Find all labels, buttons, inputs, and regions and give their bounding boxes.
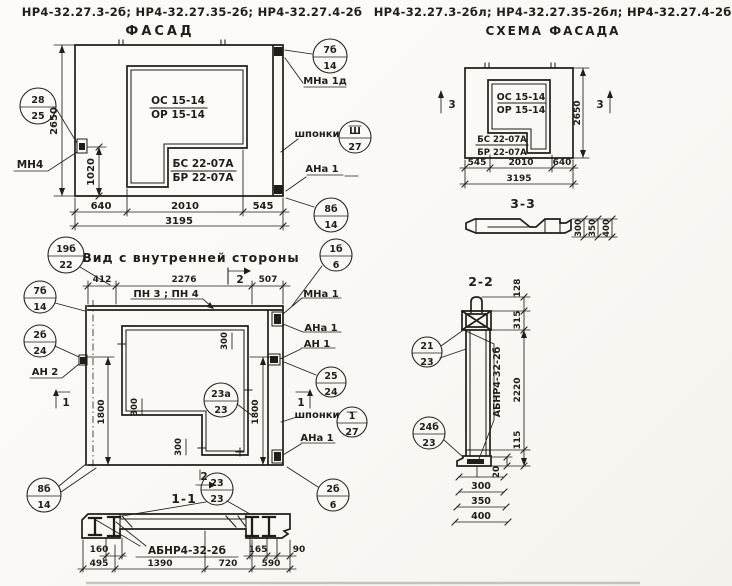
dim-stack-350: 350 (471, 496, 491, 507)
section-1-1: 1-1 23 23 АБНР4-32-2б 160 165 90 495 139… (78, 473, 305, 572)
arrowhead (105, 457, 111, 465)
section-3-3-title: 3-3 (510, 196, 536, 211)
an1-anchor (270, 356, 278, 363)
dim-300: 300 (574, 219, 584, 237)
section-mark-3-right: 3 (596, 99, 603, 111)
arrowhead (580, 150, 586, 158)
callout-top: 28 (31, 95, 45, 106)
callout-28-25: 28 25 (20, 88, 56, 124)
callout-top: 8б (324, 204, 338, 215)
callout-8b-14: 8б 14 (27, 478, 61, 512)
mark-or: ОР 15-14 (497, 105, 546, 116)
dim-720: 720 (219, 559, 238, 569)
callout-bottom: 22 (59, 260, 72, 271)
callout-top: Ш (349, 126, 361, 137)
callout-bottom: 14 (33, 302, 47, 313)
callout-2b-24: 2б 24 (24, 325, 56, 357)
dim-300-c: 300 (174, 438, 184, 456)
section-mark-1-right: 1 (297, 397, 304, 409)
dim-128: 128 (513, 279, 523, 298)
label-shponki: шпонки (294, 410, 339, 421)
label-mna1: МНа 1 (303, 289, 339, 300)
callout-top: 1 (349, 411, 356, 422)
dim-2010: 2010 (171, 201, 199, 212)
inner-view-drawing: Вид с внутренней стороны 412 2276 507 ПН… (24, 237, 367, 512)
dim-1020: 1020 (86, 158, 97, 186)
dim-1390: 1390 (147, 559, 172, 569)
section-2-2-title: 2-2 (468, 274, 494, 289)
header: НР4-32.27.3-2б; НР4-32.27.35-2б; НР4-32.… (22, 5, 732, 39)
right-codes: НР4-32.27.3-2бл; НР4-32.27.35-2бл; НР4-3… (374, 5, 732, 19)
dim-495: 495 (90, 559, 109, 569)
callout-7b-14: 7б 14 (313, 39, 347, 73)
callout-2b-6: 2б 6 (317, 479, 349, 511)
callout-top: 25 (324, 371, 337, 382)
callout-top: 19б (56, 244, 76, 255)
dim-640: 640 (91, 201, 112, 212)
label-ana1: АНа 1 (305, 164, 338, 175)
callout-19b-22: 19б 22 (48, 237, 84, 273)
callout-top: 23 (210, 478, 223, 489)
mark-bs: БС 22-07А (477, 135, 527, 145)
dim-90: 90 (293, 545, 306, 555)
schema-dim-lines (441, 68, 610, 188)
dim-2650: 2650 (573, 100, 583, 125)
callout-bottom: 6 (330, 500, 337, 511)
callout-bottom: 14 (324, 220, 338, 231)
foot-plate (467, 459, 484, 464)
profile-1-1-details (120, 514, 246, 529)
label-abnr-vertical: АБНР4-32-2б (492, 346, 503, 417)
label-ana1-bottom: АНа 1 (300, 433, 333, 444)
dim-160: 160 (90, 545, 109, 555)
dim-300-a: 300 (220, 332, 230, 350)
callout-1-27: 1 27 (337, 407, 367, 438)
callout-bottom: 27 (345, 427, 358, 438)
technical-drawing-sheet: НР4-32.27.3-2б; НР4-32.27.35-2б; НР4-32.… (0, 0, 732, 586)
drawing-canvas: НР4-32.27.3-2б; НР4-32.27.35-2б; НР4-32.… (0, 0, 732, 586)
facade-drawing: ОС 15-14 ОР 15-14 БС 22-07А БР 22-07А 26… (14, 39, 371, 232)
arrowhead (105, 357, 111, 365)
left-codes: НР4-32.27.3-2б; НР4-32.27.35-2б; НР4-32.… (22, 5, 362, 19)
callout-21-23: 21 23 (412, 337, 442, 368)
callout-top: 7б (323, 45, 337, 56)
dim-1800-left: 1800 (97, 399, 107, 424)
callout-bottom: 23 (420, 357, 433, 368)
arrowhead (96, 147, 102, 155)
label-an1: АН 1 (304, 339, 331, 350)
profile-3-3-details (476, 219, 560, 233)
callout-bottom: 23 (210, 494, 223, 505)
dim-115: 115 (513, 431, 523, 450)
callout-bottom: 27 (348, 142, 361, 153)
label-pn: ПН 3 ; ПН 4 (133, 289, 198, 300)
section-arrow-1-right (307, 389, 313, 396)
callout-bottom: 14 (37, 500, 51, 511)
dim-640: 640 (553, 158, 572, 168)
arrowhead (59, 188, 65, 196)
callout-top: 8б (37, 484, 51, 495)
callout-top: 7б (33, 286, 47, 297)
dim-2220: 2220 (513, 377, 523, 402)
dim-3195: 3195 (165, 216, 193, 227)
dim-2276: 2276 (171, 275, 196, 285)
profile-2-2-details (466, 330, 490, 456)
dim-590: 590 (262, 559, 281, 569)
callout-23-23: 23 23 (201, 473, 233, 505)
dim-3195: 3195 (506, 174, 531, 184)
callout-top: 2б (326, 484, 340, 495)
dim-165: 165 (249, 545, 268, 555)
label-shponki: шпонки (294, 129, 339, 140)
arrowhead (59, 45, 65, 53)
dim-545: 545 (468, 158, 487, 168)
dim-507: 507 (259, 275, 278, 285)
right-title: СХЕМА ФАСАДА (486, 24, 621, 38)
label-ana1-top: АНа 1 (304, 323, 337, 334)
dim-400: 400 (602, 219, 612, 237)
callout-top: 1б (329, 244, 343, 255)
section-arrow (438, 90, 444, 98)
section-arrow-2-top (244, 268, 251, 275)
callout-bottom: 24 (33, 346, 47, 357)
dim-1800-right: 1800 (251, 399, 261, 424)
label-abnr: АБНР4-32-2б (148, 545, 226, 557)
arrowhead (260, 357, 266, 365)
mark-or: ОР 15-14 (151, 109, 205, 121)
dim-350: 350 (588, 219, 598, 237)
callout-top: 23а (211, 389, 231, 400)
schema-drawing: ОС 15-14 ОР 15-14 БС 22-07А БР 22-07А 26… (438, 63, 617, 240)
section-arrow (607, 90, 613, 98)
callout-bottom: 24 (324, 387, 338, 398)
dim-300-b: 300 (130, 398, 140, 416)
callout-top: 21 (420, 341, 433, 352)
callout-25-24: 25 24 (316, 367, 346, 398)
mark-br: БР 22-07А (172, 172, 234, 184)
mn4-anchor (79, 143, 85, 150)
left-title: ФАСАД (125, 24, 194, 39)
embedded-beams (89, 517, 275, 536)
callout-24b-23: 24б 23 (413, 417, 445, 449)
arrowhead (521, 330, 527, 338)
section-3-3: 3-3 300 350 400 (466, 196, 617, 240)
callout-23a-23: 23а 23 (204, 383, 238, 417)
callout-8b-14: 8б 14 (314, 198, 348, 232)
dim-stack-400: 400 (471, 511, 491, 522)
dim-545: 545 (253, 201, 274, 212)
callout-bottom: 23 (422, 438, 435, 449)
label-mn4: МН4 (17, 159, 44, 171)
arrowhead (580, 68, 586, 76)
arrowhead (96, 188, 102, 196)
inner-view-title: Вид с внутренней стороны (82, 250, 299, 265)
callout-bottom: 25 (31, 111, 44, 122)
label-mna1d: МНа 1д (303, 76, 347, 87)
section-mark-3-left: 3 (448, 99, 455, 111)
callout-top: 2б (33, 330, 47, 341)
section-mark-1-left: 1 (62, 397, 69, 409)
section-mark-2-top: 2 (236, 274, 243, 286)
callout-bottom: 23 (214, 405, 227, 416)
arrowhead (260, 457, 266, 465)
arrowhead (521, 458, 527, 466)
profile-3-3-outline (466, 219, 571, 233)
callout-bottom: 6 (333, 260, 340, 271)
section-2-2: 2-2 АБНР4-32-2б 128 315 2220 115 20 300 … (412, 274, 530, 525)
edge-block-top (274, 314, 281, 324)
edge-block-bottom (274, 452, 281, 461)
dim-412: 412 (93, 275, 112, 285)
an2-anchor (80, 357, 86, 364)
mark-os: ОС 15-14 (497, 92, 546, 103)
callout-bottom: 14 (323, 61, 337, 72)
callout-1b-6: 1б 6 (320, 239, 352, 271)
callout-top: 24б (419, 422, 439, 433)
callout-sh-27: Ш 27 (339, 121, 371, 153)
edge-block-bottom (274, 185, 283, 194)
dim-stack-300: 300 (471, 481, 491, 492)
edge-block-top (274, 47, 283, 56)
dim-2010: 2010 (508, 158, 533, 168)
label-an2: АН 2 (32, 367, 59, 378)
mark-br: БР 22-07А (477, 148, 527, 158)
callout-7b-14: 7б 14 (24, 281, 56, 313)
mark-os: ОС 15-14 (151, 95, 205, 107)
dim-315: 315 (513, 311, 523, 330)
section-arrow-1-left (53, 389, 59, 396)
mark-bs: БС 22-07А (172, 158, 234, 170)
dim-20: 20 (492, 466, 502, 479)
dim-2650: 2650 (49, 107, 60, 135)
